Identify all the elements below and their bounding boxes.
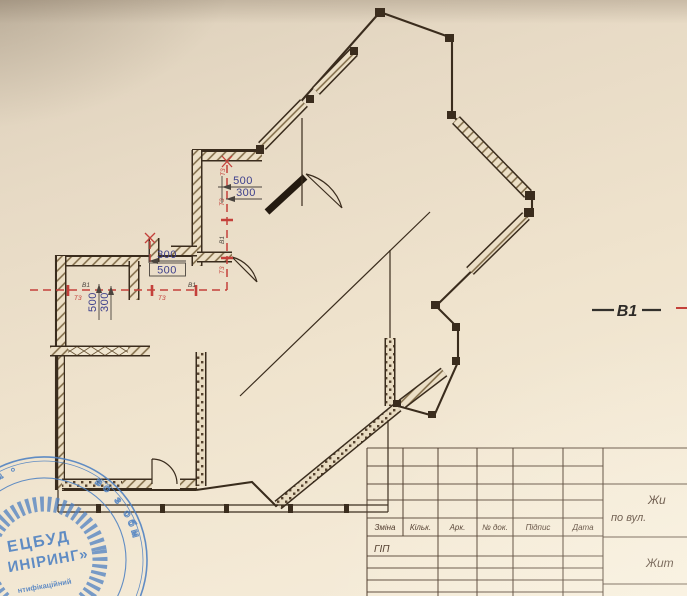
riser-label: Т3 <box>219 266 226 274</box>
blueprint-photo: В1 Т3 В1 Т3 Т3 В1 Т3 Т3 500 300 300 500 … <box>0 0 687 596</box>
title-col-kilk: Кільк. <box>410 523 431 532</box>
riser-label: В1 <box>82 282 90 289</box>
title-role-gip: ГІП <box>374 544 390 555</box>
dimension-left-room: 500 300 <box>87 284 114 320</box>
riser-label: В1 <box>188 282 196 289</box>
riser-label: Т3 <box>220 168 227 176</box>
svg-text:500: 500 <box>233 175 253 187</box>
riser-label: Т3 <box>219 198 226 206</box>
svg-text:300: 300 <box>236 187 256 199</box>
project-name-line1: Жи <box>647 493 666 507</box>
floor-plan <box>50 8 535 513</box>
axis-marker-label: В1 <box>617 303 638 320</box>
door-arcs <box>152 174 342 484</box>
svg-text:300: 300 <box>99 292 111 312</box>
interior-partitions <box>240 118 430 396</box>
riser-label: Т3 <box>158 295 166 302</box>
title-block: Зміна Кільк. Арк. № док. Підпис Дата ГІП… <box>367 448 687 596</box>
title-col-zmina: Зміна <box>374 523 396 532</box>
stamp-small-text: нтифікаційний <box>17 577 73 595</box>
title-col-nodoc: № док. <box>482 523 508 532</box>
riser-label: В1 <box>219 236 226 244</box>
axis-marker-b1: В1 <box>592 303 661 320</box>
title-col-data: Дата <box>571 523 594 532</box>
outer-wall-left-block <box>56 256 196 490</box>
project-name-line2: по вул. <box>611 512 646 524</box>
riser-label: Т3 <box>74 295 82 302</box>
svg-text:500: 500 <box>157 265 177 277</box>
title-col-pidpys: Підпис <box>526 523 551 532</box>
title-col-ark: Арк. <box>449 523 466 532</box>
hatched-walls <box>50 52 528 490</box>
svg-text:500: 500 <box>87 292 99 312</box>
company-stamp: аіна • ТО во з обм ЕЦБУД ИНІРИНГ» нтифік… <box>0 441 163 596</box>
svg-text:300: 300 <box>157 249 177 261</box>
stippled-walls <box>62 338 398 505</box>
blueprint-svg: В1 Т3 В1 Т3 Т3 В1 Т3 Т3 500 300 300 500 … <box>0 0 687 596</box>
project-name-line3: Жит <box>645 556 674 570</box>
solid-wall-segment <box>267 177 305 212</box>
balcony <box>58 420 388 513</box>
